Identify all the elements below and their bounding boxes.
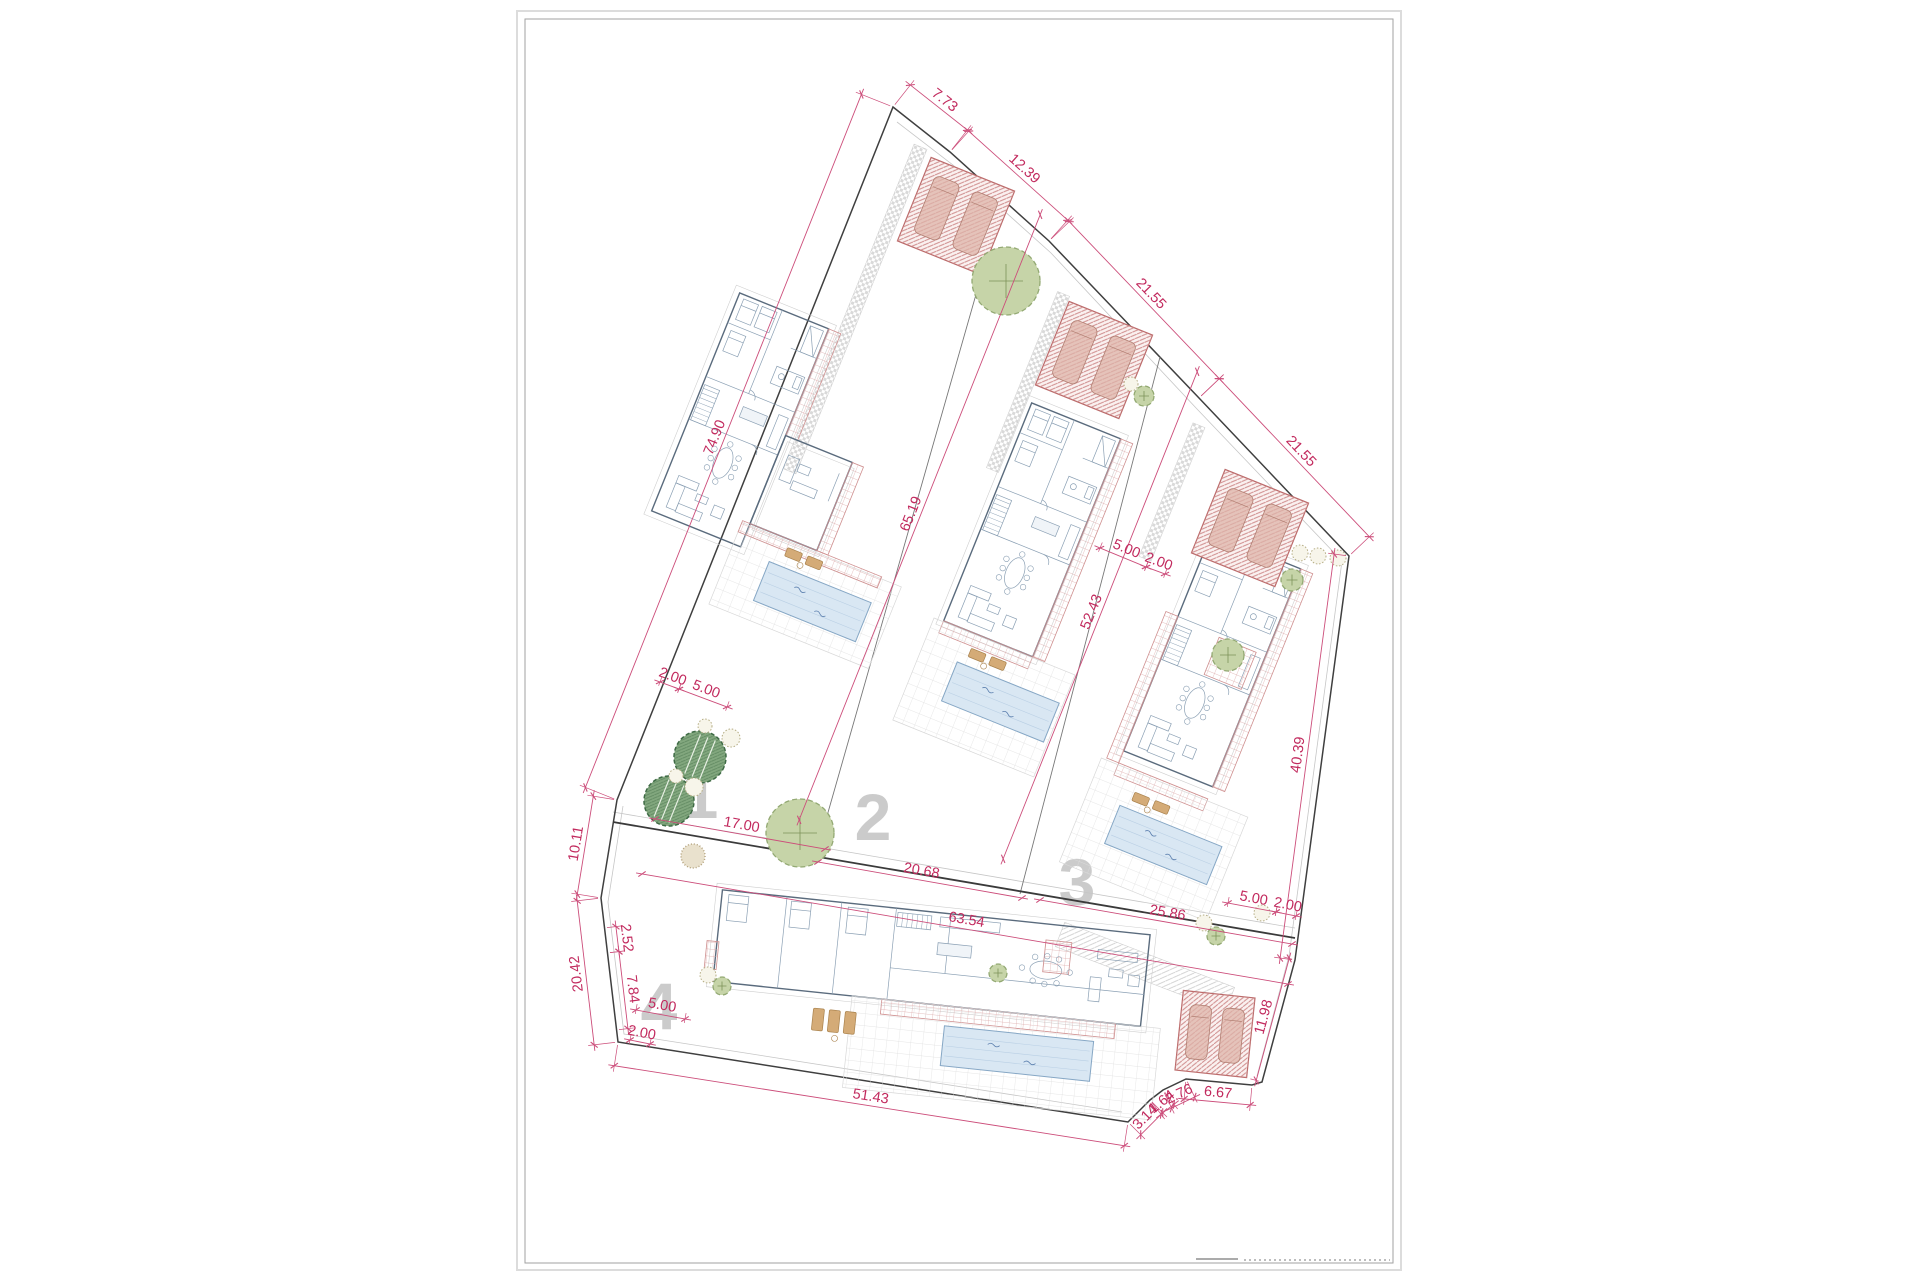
bush-tan (681, 844, 705, 868)
tree-light (972, 247, 1040, 315)
dimension-label: 2.52 (617, 923, 636, 953)
shrub (685, 778, 703, 796)
shrub (1310, 548, 1326, 564)
tree-light (713, 977, 731, 995)
shrub (722, 729, 740, 747)
shrub (700, 967, 716, 983)
shrub (698, 719, 712, 733)
dimension-label: 7.84 (623, 974, 642, 1004)
tree-light (989, 964, 1007, 982)
site-plan-svg: 1234 7.7312.3921.5521.5540.3911.986.672.… (0, 0, 1920, 1280)
tree-light (1134, 386, 1154, 406)
shrub (669, 769, 683, 783)
drawing-canvas: 1234 7.7312.3921.5521.5540.3911.986.672.… (0, 0, 1920, 1280)
tree-light (766, 799, 834, 867)
tree-light (1212, 639, 1244, 671)
plot-number-2: 2 (855, 780, 892, 854)
tree-light (1281, 569, 1303, 591)
shrub (1292, 545, 1308, 561)
dimension-label: 6.67 (1203, 1084, 1233, 1102)
villa-4-carport (1175, 990, 1255, 1077)
shrub (1124, 377, 1138, 391)
